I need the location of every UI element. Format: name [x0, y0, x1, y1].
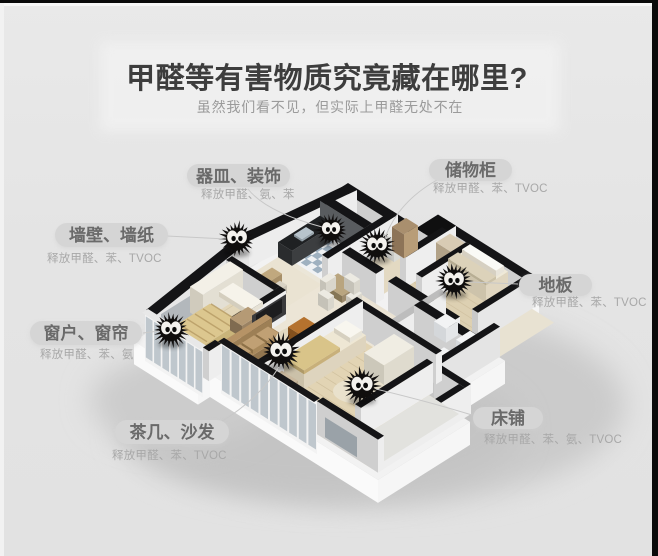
svg-text:虽然我们看不见，但实际上甲醛无处不在: 虽然我们看不见，但实际上甲醛无处不在	[197, 99, 463, 115]
svg-text:释放甲醛、苯、TVOC: 释放甲醛、苯、TVOC	[47, 251, 162, 265]
svg-text:释放甲醛、苯、TVOC: 释放甲醛、苯、TVOC	[433, 181, 548, 195]
svg-text:器皿、装饰: 器皿、装饰	[195, 166, 281, 186]
svg-text:床铺: 床铺	[491, 408, 525, 428]
svg-text:地板: 地板	[539, 275, 574, 295]
svg-text:墙壁、墙纸: 墙壁、墙纸	[69, 225, 154, 245]
svg-text:释放甲醛、苯、TVOC: 释放甲醛、苯、TVOC	[112, 448, 227, 462]
svg-text:茶几、沙发: 茶几、沙发	[130, 422, 216, 442]
svg-text:窗户、窗帘: 窗户、窗帘	[44, 323, 129, 343]
svg-text:释放甲醛、氨、苯: 释放甲醛、氨、苯	[201, 187, 295, 201]
svg-text:释放甲醛、苯、氨、TVOC: 释放甲醛、苯、氨、TVOC	[484, 432, 622, 446]
svg-text:释放甲醛、苯、氨: 释放甲醛、苯、氨	[40, 347, 134, 361]
svg-text:储物柜: 储物柜	[445, 160, 496, 180]
svg-text:甲醛等有害物质究竟藏在哪里?: 甲醛等有害物质究竟藏在哪里?	[126, 61, 528, 95]
svg-text:释放甲醛、苯、TVOC: 释放甲醛、苯、TVOC	[532, 295, 647, 309]
